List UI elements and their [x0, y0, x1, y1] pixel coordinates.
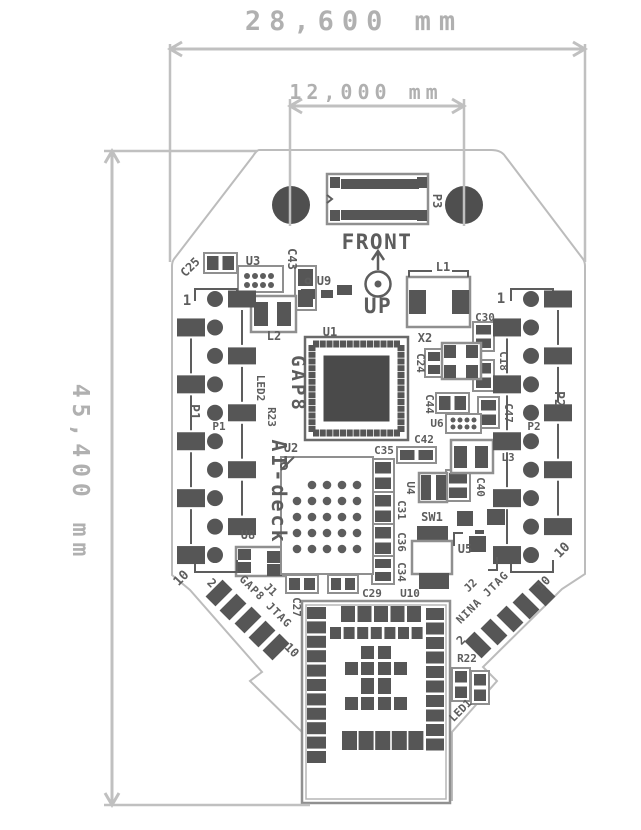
u2-ball	[353, 545, 362, 554]
u2-ball	[338, 481, 347, 490]
label-p1-small: P1	[212, 420, 226, 433]
label-c47: C47	[502, 403, 515, 423]
ic-dot-u6	[465, 425, 470, 430]
label-x2: X2	[418, 331, 432, 345]
header-hole-p1	[207, 519, 223, 535]
pad-c40	[449, 473, 467, 484]
module-pad	[307, 722, 326, 734]
ic-dot-u3	[268, 273, 274, 279]
header-smd-p1	[177, 432, 205, 450]
jtag-pad-j2	[481, 619, 508, 646]
header-smd-p2	[544, 404, 572, 421]
pad	[457, 511, 473, 526]
pad-c36	[375, 543, 391, 555]
label-l3: L3	[501, 451, 514, 464]
module-pad	[342, 731, 357, 750]
u2-ball	[353, 481, 362, 490]
sw1-pad	[419, 573, 449, 589]
u2-ball	[338, 545, 347, 554]
pad-u8	[267, 551, 282, 563]
module-pad	[307, 679, 326, 691]
pad-c27	[289, 578, 300, 590]
gap8-pin	[387, 430, 393, 437]
gap8-pin	[398, 419, 405, 425]
label-r22: R22	[457, 652, 477, 665]
header-smd-p2	[493, 318, 521, 336]
pad-c44	[439, 396, 451, 410]
module-pad	[407, 606, 421, 622]
module-pad	[398, 627, 409, 639]
header-smd-p2	[544, 291, 572, 308]
pad-u8	[267, 564, 282, 576]
label-c27: C27	[290, 597, 303, 617]
pad-l2	[254, 302, 268, 326]
pad-c27	[304, 578, 315, 590]
module-pad	[307, 708, 326, 720]
module-pad	[426, 695, 444, 707]
header-hole-p1	[207, 490, 223, 506]
label-c42: C42	[414, 433, 434, 446]
module-pad	[307, 650, 326, 662]
gap8-pin	[354, 430, 360, 437]
label-j2: J2	[461, 576, 480, 595]
module-pad	[378, 646, 391, 659]
gap8-pin	[394, 341, 400, 348]
module-pad	[426, 724, 444, 736]
label-c44: C44	[423, 394, 436, 414]
ic-dot-u3	[244, 273, 250, 279]
pad-c24	[428, 352, 440, 361]
pad-u4	[436, 475, 446, 500]
module-pad	[378, 662, 391, 675]
ic-dot-u3	[252, 273, 258, 279]
module-pad	[307, 751, 326, 763]
gap8-pin	[367, 430, 373, 437]
gap8-pin	[347, 430, 353, 437]
gap8-pin	[374, 341, 380, 348]
module-pad	[344, 627, 355, 639]
gap8-pin	[340, 430, 346, 437]
gap8-pin	[320, 341, 326, 348]
pad-l3	[475, 446, 488, 468]
gap8-pin	[309, 413, 316, 419]
pad-c44	[455, 396, 467, 410]
pad-u8	[238, 562, 251, 573]
label-p1-big: P1	[186, 404, 201, 420]
module-pad	[408, 731, 423, 750]
pad-r22	[455, 687, 467, 699]
gap8-pin	[398, 365, 405, 371]
gap8-pin	[367, 341, 373, 348]
module-pad	[426, 710, 444, 722]
pad-c43	[298, 269, 313, 286]
pad-l1	[409, 290, 426, 314]
label-u6: U6	[430, 417, 444, 430]
header-hole-p2	[523, 348, 539, 364]
ic-dot-u6	[472, 425, 477, 430]
header-smd-p2	[544, 518, 572, 535]
module-pad	[361, 646, 374, 659]
label-p2-pin1: 1	[497, 291, 505, 307]
gap8-pin	[360, 430, 366, 437]
pad	[321, 290, 333, 298]
label-u10: U10	[400, 587, 420, 600]
label-c43: C43	[285, 248, 299, 270]
label-u3: U3	[246, 254, 260, 268]
u2-ball	[293, 545, 302, 554]
p3-pad-bar	[341, 179, 419, 189]
header-hole-p2	[523, 433, 539, 449]
ic-dot-u6	[451, 418, 456, 423]
u2-ball	[353, 529, 362, 538]
ic-dot-u6	[472, 418, 477, 423]
header-smd-p2	[493, 432, 521, 450]
u2-ball	[308, 545, 317, 554]
module-pad	[391, 606, 405, 622]
gap8-pin	[309, 426, 316, 432]
module-pad	[394, 697, 407, 710]
module-pad	[384, 627, 395, 639]
gap8-die	[324, 356, 390, 422]
pad	[301, 289, 315, 299]
pad-r22	[455, 671, 467, 683]
gap8-pin	[309, 345, 316, 351]
pcb-dimension-drawing: U3C43C25U91P1P1LED2R23L2U1GAP8AI-deckU2F…	[0, 0, 641, 830]
pad-led1	[474, 690, 486, 702]
ic-dot-u6	[465, 418, 470, 423]
gap8-pin	[398, 386, 405, 392]
header-smd-p1	[228, 291, 256, 308]
pad-x2	[444, 345, 456, 358]
label-u5: U5	[458, 542, 472, 556]
label-r23: R23	[265, 407, 278, 427]
pad	[487, 509, 505, 525]
label-p3: P3	[430, 194, 444, 208]
dim-board-height-text: 45,400 mm	[67, 384, 93, 563]
header-hole-p2	[523, 519, 539, 535]
module-pad	[307, 636, 326, 648]
ic-u3	[238, 266, 283, 292]
u2-ball	[293, 513, 302, 522]
label-l1: L1	[436, 260, 450, 274]
gap8-pin	[398, 413, 405, 419]
label-c18: C18	[497, 351, 510, 371]
pad-c34	[375, 572, 391, 581]
module-pad	[426, 681, 444, 693]
u2-ball	[308, 481, 317, 490]
drawing-canvas: U3C43C25U91P1P1LED2R23L2U1GAP8AI-deckU2F…	[0, 0, 641, 830]
module-pad	[426, 608, 444, 620]
jtag-pad-j2	[497, 606, 524, 633]
module-pad	[307, 607, 326, 619]
module-pad	[330, 627, 341, 639]
label-ai-deck: AI-deck	[267, 439, 291, 544]
label-u4: U4	[404, 481, 417, 495]
header-hole-p1	[207, 433, 223, 449]
module-pad	[357, 627, 368, 639]
gap8-pin	[381, 430, 387, 437]
label-c40: C40	[474, 477, 487, 497]
label-c35: C35	[374, 444, 394, 457]
header-hole-p2	[523, 319, 539, 335]
header-hole-p1	[207, 376, 223, 392]
u2-ball	[308, 529, 317, 538]
header-hole-p2	[523, 376, 539, 392]
gap8-pin	[327, 430, 333, 437]
module-pad	[358, 606, 372, 622]
gap8-pin	[398, 352, 405, 358]
header-hole-p1	[207, 462, 223, 478]
header-smd-p1	[228, 461, 256, 478]
header-hole-p1	[207, 319, 223, 335]
module-pad	[345, 662, 358, 675]
gap8-pin	[347, 341, 353, 348]
up-indicator	[366, 251, 391, 297]
p3-pad-bar	[341, 210, 419, 220]
gap8-pin	[320, 430, 326, 437]
header-smd-p2	[493, 489, 521, 507]
header-hole-p1	[207, 348, 223, 364]
pad-c29	[345, 578, 355, 590]
module-pad	[307, 737, 326, 749]
sw1-body	[412, 541, 452, 574]
module-pad	[392, 731, 407, 750]
module-pad	[341, 606, 355, 622]
gap8-pin	[398, 406, 405, 412]
ic-dot-u3	[244, 282, 250, 288]
pad-l2	[277, 302, 291, 326]
module-pad	[378, 697, 391, 710]
u2-ball	[323, 529, 332, 538]
u2-ball	[293, 497, 302, 506]
dim-hole-spacing-text: 12,000 mm	[289, 80, 442, 104]
module-pad	[375, 731, 390, 750]
module-pad	[359, 731, 374, 750]
pad-u4	[421, 475, 431, 500]
u2-ball	[338, 497, 347, 506]
u2-ball	[308, 513, 317, 522]
p3-corner-pad	[330, 177, 340, 188]
gap8-pin	[398, 379, 405, 385]
pad-led1	[474, 674, 486, 686]
module-pad	[426, 637, 444, 649]
gap8-pin	[398, 426, 405, 432]
ic-dot-u6	[458, 425, 463, 430]
pad-c36	[375, 527, 391, 539]
p3-corner-pad	[330, 210, 340, 221]
gap8-pin	[381, 341, 387, 348]
module-pad	[426, 652, 444, 664]
silkscreen-layer: U3C43C25U91P1P1LED2R23L2U1GAP8AI-deckU2F…	[171, 174, 574, 803]
u2-ball	[338, 529, 347, 538]
pad-c29	[331, 578, 341, 590]
pad	[475, 530, 484, 534]
label-gap8: GAP8	[287, 355, 309, 413]
pad-c25	[223, 256, 235, 270]
pad	[337, 285, 352, 295]
header-smd-p1	[177, 318, 205, 336]
header-hole-p1	[207, 405, 223, 421]
ic-dot-u3	[260, 273, 266, 279]
gap8-pin	[340, 341, 346, 348]
sw1-pad	[417, 526, 448, 542]
gap8-pin	[333, 341, 339, 348]
u2-ball	[353, 497, 362, 506]
pad-c34	[375, 559, 391, 568]
u2-ball	[338, 513, 347, 522]
pad-c40	[449, 488, 467, 499]
header-smd-p1	[177, 546, 205, 564]
u2-ball	[293, 529, 302, 538]
gap8-pin	[398, 359, 405, 365]
p3-corner-pad	[417, 210, 427, 221]
gap8-pin	[327, 341, 333, 348]
gap8-pin	[387, 341, 393, 348]
module-pad	[394, 662, 407, 675]
p3-corner-pad	[417, 177, 427, 188]
label-c31: C31	[395, 500, 408, 520]
ic-dot-u3	[268, 282, 274, 288]
label-c34: C34	[395, 562, 408, 582]
module-pad	[426, 666, 444, 678]
gap8-pin	[309, 419, 316, 425]
gap8-pin	[360, 341, 366, 348]
gap8-pin	[398, 399, 405, 405]
header-smd-p1	[228, 347, 256, 364]
u2-ball	[353, 513, 362, 522]
pad-c47	[481, 415, 496, 426]
u2-ball	[323, 513, 332, 522]
ic-dot-u6	[451, 425, 456, 430]
u2-ball	[323, 481, 332, 490]
pad-c30	[476, 325, 491, 335]
pad-c42	[419, 450, 434, 460]
module-pad	[307, 693, 326, 705]
u2-ball	[323, 545, 332, 554]
pad-x2	[444, 365, 456, 378]
ic-dot-u3	[252, 282, 258, 288]
label-p2-pin10: 10	[552, 540, 574, 562]
pad-c24	[428, 365, 440, 374]
header-hole-p2	[523, 291, 539, 307]
label-c24: C24	[414, 353, 427, 373]
module-pad	[426, 623, 444, 635]
module-pad	[412, 627, 423, 639]
pad-c31	[375, 495, 391, 507]
gap8-pin	[333, 430, 339, 437]
label-p1-pin1: 1	[183, 293, 191, 309]
pad-c25	[207, 256, 219, 270]
header-smd-p1	[228, 404, 256, 421]
label-u9: U9	[317, 274, 331, 288]
label-sw1: SW1	[421, 510, 443, 524]
pad-c42	[400, 450, 415, 460]
label-l2: L2	[267, 329, 281, 343]
pad-x2	[466, 345, 478, 358]
gap8-pin	[374, 430, 380, 437]
pad-x2	[466, 365, 478, 378]
header-smd-p2	[544, 347, 572, 364]
label-c30: C30	[475, 311, 495, 324]
label-u1: U1	[323, 325, 337, 339]
label-u2: U2	[284, 441, 298, 455]
pad-c47	[481, 400, 496, 411]
pad-c35	[375, 462, 391, 474]
module-pad	[374, 606, 388, 622]
header-smd-p1	[177, 489, 205, 507]
header-hole-p2	[523, 462, 539, 478]
header-hole-p2	[523, 490, 539, 506]
module-pad	[361, 678, 374, 694]
pad-u8	[238, 549, 251, 560]
header-smd-p2	[493, 375, 521, 393]
gap8-pin	[354, 341, 360, 348]
label-p1-pin10: 10	[171, 568, 193, 590]
ic-dot-u6	[458, 418, 463, 423]
gap8-pin	[398, 392, 405, 398]
label-p2-big: P2	[551, 391, 566, 407]
module-pad	[426, 739, 444, 751]
label-p2-small: P2	[527, 420, 540, 433]
label-led2: LED2	[254, 375, 267, 402]
label-c36: C36	[395, 532, 408, 552]
ic-dot-u3	[260, 282, 266, 288]
dim-board-width-text: 28,600 mm	[245, 6, 463, 37]
up-indicator-dot	[375, 281, 382, 288]
u2-ball	[323, 497, 332, 506]
label-u8: U8	[241, 528, 255, 542]
module-pad	[345, 697, 358, 710]
pad-c35	[375, 478, 391, 490]
header-smd-p1	[177, 375, 205, 393]
pad-l3	[454, 446, 467, 468]
pad-l1	[452, 290, 469, 314]
u2-ball	[308, 497, 317, 506]
module-pad	[371, 627, 382, 639]
module-pad	[361, 662, 374, 675]
module-pad	[307, 665, 326, 677]
label-c29: C29	[362, 587, 382, 600]
gap8-pin	[398, 372, 405, 378]
header-smd-p2	[544, 461, 572, 478]
module-pad	[361, 697, 374, 710]
header-hole-p1	[207, 547, 223, 563]
pad-c31	[375, 511, 391, 523]
header-hole-p2	[523, 547, 539, 563]
header-hole-p2	[523, 405, 539, 421]
module-pad	[378, 678, 391, 694]
module-pad	[307, 621, 326, 633]
ic-u6	[446, 414, 481, 433]
label-c25: C25	[178, 255, 203, 280]
header-hole-p1	[207, 291, 223, 307]
